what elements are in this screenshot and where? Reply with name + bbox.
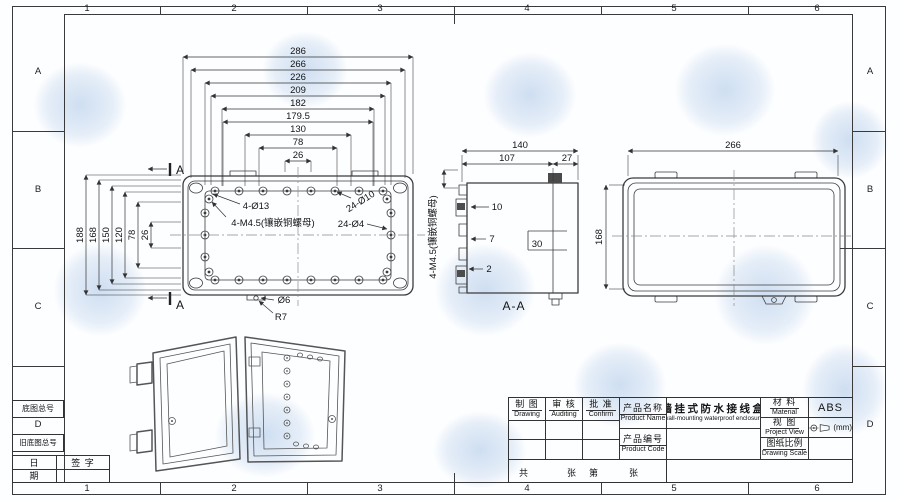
dim-text: 286 (290, 46, 306, 57)
dim-text: 78 (127, 230, 138, 241)
dim-text: 150 (101, 227, 112, 243)
isometric-view (130, 337, 345, 471)
note-radius: R7 (275, 312, 287, 323)
dim-text: 78 (293, 137, 304, 148)
views-canvas: A A 286 266 226 209 18 (0, 0, 900, 500)
dim-width: 266 (725, 140, 741, 151)
dim-height: 168 (594, 229, 605, 245)
dim-text: 182 (290, 98, 306, 109)
front-view-top-dimensions: 286 266 226 209 182 179.5 130 78 26 (183, 46, 413, 186)
section-label: A-A (502, 299, 525, 313)
dim-text: 120 (114, 227, 125, 243)
dim-step2: 7 (489, 234, 494, 245)
dim-text: 266 (290, 59, 306, 70)
front-view-annotations: 4-Ø13 4-M4.5(镶嵌铜螺母) 24-Ø10 24-Ø4 Ø6 R7 (212, 189, 387, 323)
front-view-left-dimensions: 188 168 150 120 78 26 (75, 175, 181, 295)
note-inserts: 4-M4.5(镶嵌铜螺母) (231, 217, 314, 229)
note-lid-screws: 24-Ø10 (344, 189, 377, 215)
section-mark-a-bottom: A (176, 298, 184, 312)
front-view: A A (148, 163, 425, 312)
iso-screw-bosses (284, 355, 290, 439)
dim-text: 168 (88, 227, 99, 243)
dim-text: 188 (75, 227, 86, 243)
engineering-drawing-sheet: 1 2 3 4 5 6 1 2 3 4 5 6 A B C D A B C D … (0, 0, 900, 500)
dim-lid: 27 (562, 153, 573, 164)
note-hole: Ø6 (278, 295, 291, 306)
note-corner-holes: 4-Ø13 (243, 201, 269, 212)
dim-text: 226 (290, 72, 306, 83)
dim-step3: 2 (486, 264, 491, 275)
dim-text: 26 (293, 150, 304, 161)
dim-body: 107 (499, 153, 515, 164)
section-view: 30 140 107 27 10 7 2 4-M4.5(镶嵌铜螺母) A-A (427, 140, 578, 313)
dim-overall: 140 (512, 140, 528, 151)
note-inserts-section: 4-M4.5(镶嵌铜螺母) (427, 195, 439, 278)
dim-slot: 30 (532, 239, 543, 250)
dim-text: 209 (290, 85, 306, 96)
dim-text: 26 (140, 230, 151, 241)
dim-step1: 10 (492, 202, 503, 213)
dim-text: 130 (290, 124, 306, 135)
dim-text: 179.5 (286, 111, 310, 122)
note-small-holes: 24-Ø4 (338, 219, 364, 230)
back-view: 266 168 (594, 140, 852, 306)
